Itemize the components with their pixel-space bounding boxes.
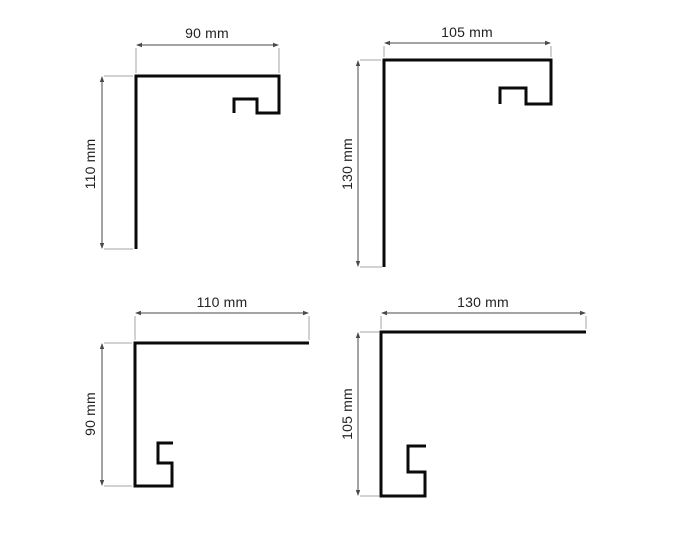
width-dimension-label-profile-1: 90 mm — [185, 26, 229, 40]
height-dimension-label-profile-2: 130 mm — [340, 138, 354, 190]
arrowhead-up-icon — [356, 60, 360, 66]
width-dimension-label-profile-2: 105 mm — [441, 25, 493, 39]
height-dimension-label-profile-4: 105 mm — [340, 388, 354, 440]
corner-profile-110x90-outline — [135, 343, 309, 486]
corner-profile-105x130-outline — [384, 60, 551, 267]
arrowhead-down-icon — [100, 480, 104, 486]
arrowhead-right-icon — [545, 41, 551, 45]
arrowhead-down-icon — [356, 261, 360, 267]
height-dimension-label-profile-3: 90 mm — [83, 392, 97, 436]
arrowhead-right-icon — [303, 311, 309, 315]
corner-profile-130x105-outline — [381, 332, 586, 496]
arrowhead-up-icon — [100, 76, 104, 82]
arrowhead-left-icon — [135, 311, 141, 315]
arrowhead-down-icon — [356, 490, 360, 496]
technical-drawing-canvas: 90 mm 110 mm 105 mm 130 mm 110 mm 90 mm … — [0, 0, 675, 540]
arrowhead-left-icon — [136, 43, 142, 47]
height-dimension-label-profile-1: 110 mm — [83, 139, 97, 190]
arrowhead-up-icon — [100, 343, 104, 349]
arrowhead-down-icon — [100, 243, 104, 249]
arrowhead-up-icon — [356, 332, 360, 338]
arrowhead-right-icon — [273, 43, 279, 47]
arrowhead-right-icon — [580, 311, 586, 315]
width-dimension-label-profile-4: 130 mm — [457, 295, 509, 309]
profile-lines-layer — [0, 0, 675, 540]
width-dimension-label-profile-3: 110 mm — [197, 295, 248, 309]
corner-profile-90x110-outline — [136, 76, 279, 249]
arrowhead-left-icon — [381, 311, 387, 315]
arrowhead-left-icon — [384, 41, 390, 45]
